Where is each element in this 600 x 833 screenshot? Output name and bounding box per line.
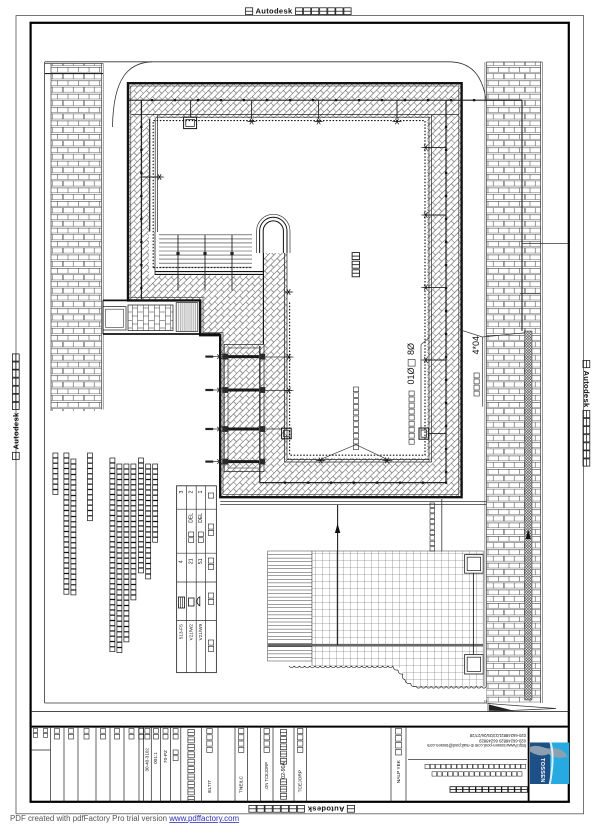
svg-text:020-66248820 66248829: 020-66248820 66248829 xyxy=(479,738,526,743)
svg-text:513-FS: 513-FS xyxy=(179,624,184,639)
svg-text:NALP YEK: NALP YEK xyxy=(396,759,402,783)
svg-text:PDF created with pdfFactory Pr: PDF created with pdfFactory Pro trial ve… xyxy=(10,814,239,823)
svg-text:1: 1 xyxy=(198,491,204,494)
svg-text:020-66248821/23/25/26/27/28: 020-66248821/23/25/26/27/28 xyxy=(469,733,526,738)
svg-text:01Ø: 01Ø xyxy=(406,368,416,385)
svg-text:30-40-3102: 30-40-3102 xyxy=(145,748,150,772)
svg-text:TOSSEN: TOSSEN xyxy=(539,758,545,783)
svg-text:51: 51 xyxy=(198,558,204,564)
svg-text:.ON TCEJORP: .ON TCEJORP xyxy=(264,762,269,790)
svg-text:2: 2 xyxy=(189,491,195,494)
svg-text:DEL: DEL xyxy=(198,513,204,523)
svg-text:ELTIT: ELTIT xyxy=(207,780,213,793)
svg-text:V21/W9: V21/W9 xyxy=(198,624,203,641)
svg-text:Autodesk: Autodesk xyxy=(582,371,591,408)
svg-text:Autodesk: Autodesk xyxy=(307,804,344,813)
svg-text:21: 21 xyxy=(189,558,195,564)
svg-text:Autodesk: Autodesk xyxy=(256,7,293,16)
svg-text:V21/W2: V21/W2 xyxy=(188,624,193,641)
svg-text:02-90A: 02-90A xyxy=(281,761,287,778)
svg-text:TCEJORP: TCEJORP xyxy=(297,770,303,792)
svg-text:001:1: 001:1 xyxy=(153,752,159,764)
svg-text:TNEILC: TNEILC xyxy=(238,775,244,793)
svg-text:Autodesk: Autodesk xyxy=(11,412,20,449)
svg-text:DEL: DEL xyxy=(189,513,195,523)
svg-text:http://www.tossen-pool.com E-m: http://www.tossen-pool.com E-mail:pool@t… xyxy=(427,743,526,748)
svg-text:70-PZ: 70-PZ xyxy=(163,750,169,763)
svg-text:4*04: 4*04 xyxy=(471,336,481,355)
svg-text:3: 3 xyxy=(179,491,185,494)
svg-text:4: 4 xyxy=(179,560,185,563)
svg-text:8Ø: 8Ø xyxy=(406,343,416,355)
